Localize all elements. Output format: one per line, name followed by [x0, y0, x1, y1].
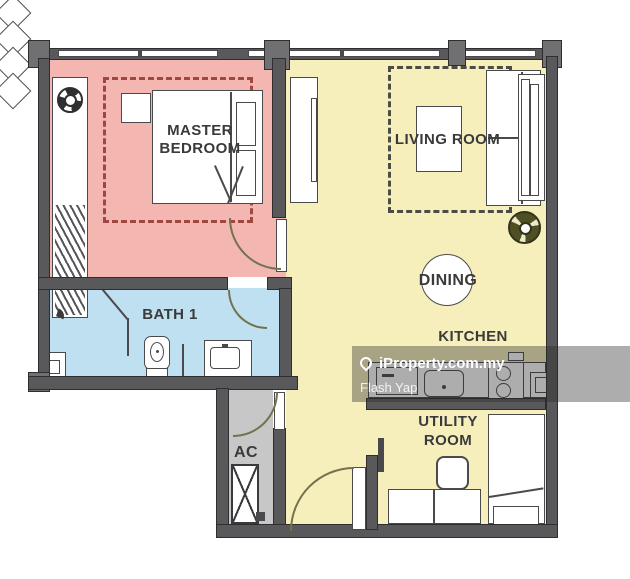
- toilet-flush-dot: [156, 350, 159, 353]
- master-bedroom-label-line1: MASTER: [167, 122, 233, 139]
- wall: [38, 277, 228, 290]
- wall: [279, 288, 292, 380]
- utility-room-label-line2: ROOM: [424, 432, 472, 449]
- wall: [366, 455, 378, 530]
- floor-plan: MASTER BEDROOM LIVING ROOM DINING KITCHE…: [0, 0, 630, 579]
- location-pin-icon: [358, 355, 375, 372]
- vanity-faucet: [222, 344, 228, 347]
- bath-1-label: BATH 1: [133, 306, 207, 323]
- wardrobe-hatching: [55, 205, 85, 315]
- kitchen-label: KITCHEN: [428, 328, 518, 345]
- master-bedroom-label: MASTER BEDROOM: [130, 122, 270, 158]
- tv-screen: [311, 98, 317, 182]
- ac-unit-cross-box: [231, 464, 259, 524]
- wall: [216, 388, 229, 536]
- watermark-brand: iProperty.com.my: [360, 355, 505, 372]
- dining-label: DINING: [411, 272, 485, 290]
- master-bedroom-label-line2: BEDROOM: [159, 140, 240, 157]
- utility-doorway: [366, 410, 378, 455]
- ceiling-fan-icon: [508, 211, 541, 244]
- wall-fin: [378, 438, 384, 472]
- dining-chair: [0, 73, 31, 110]
- wall: [216, 524, 558, 538]
- utility-chair: [436, 456, 469, 490]
- window-tick: [138, 50, 142, 57]
- shower-partition: [127, 318, 129, 356]
- desk-divider: [433, 490, 435, 523]
- shower-head-icon: [48, 308, 64, 324]
- window-tick: [340, 50, 344, 57]
- wall: [272, 58, 286, 218]
- wall: [38, 58, 50, 388]
- window: [464, 50, 536, 57]
- vanity-sink: [210, 347, 240, 369]
- watermark-author: Flash Yap: [360, 380, 417, 395]
- watermark-brand-text: iProperty.com.my: [379, 355, 505, 372]
- wall: [546, 56, 558, 538]
- sliding-window-panel: [521, 79, 530, 196]
- utility-room-label: UTILITY ROOM: [402, 412, 494, 450]
- wall: [28, 376, 298, 390]
- nightstand: [121, 93, 151, 123]
- ceiling-fan-icon: [57, 87, 83, 113]
- column: [448, 40, 466, 66]
- living-room-label: LIVING ROOM: [380, 131, 515, 148]
- bed-foot-box: [493, 506, 539, 525]
- utility-room-label-line1: UTILITY: [418, 413, 477, 430]
- ac-label: AC: [228, 444, 264, 462]
- vanity-counter-edge: [182, 344, 184, 378]
- ac-floor-trap: [256, 512, 265, 521]
- sliding-window-panel: [530, 84, 539, 196]
- door-leaf-entrance: [352, 467, 366, 530]
- wall: [273, 428, 286, 536]
